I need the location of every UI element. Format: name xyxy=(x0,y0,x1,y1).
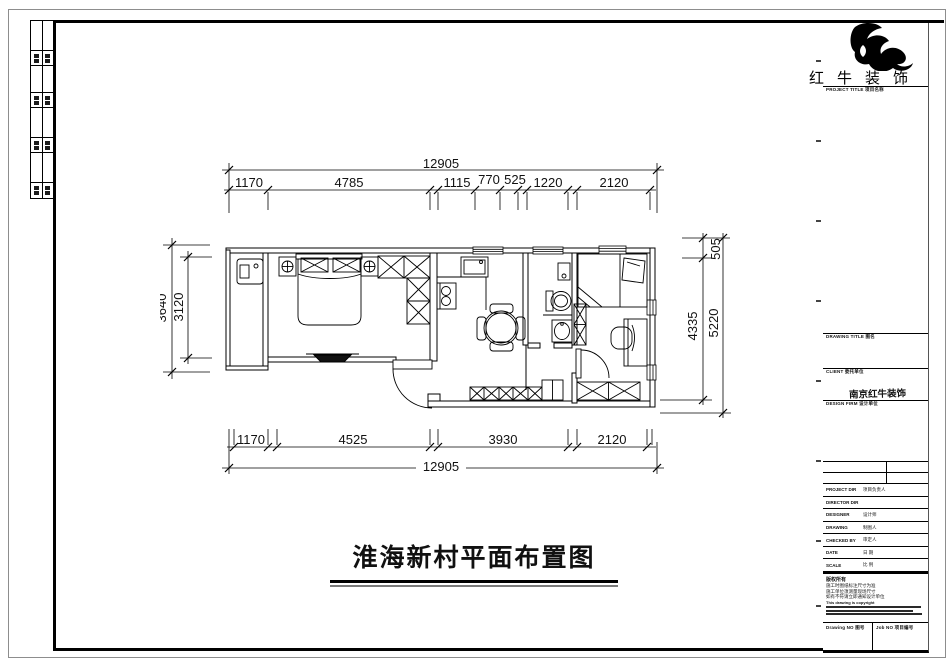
fold-tick xyxy=(816,460,821,462)
signoff-cell-marks xyxy=(43,183,54,198)
staff-row: DIRECTOR DIR xyxy=(823,496,928,509)
walls xyxy=(226,248,655,407)
svg-text:3640: 3640 xyxy=(160,294,169,323)
desk xyxy=(624,319,647,366)
client-value: 南京红牛装饰 xyxy=(849,385,906,400)
desk-chair xyxy=(611,325,635,351)
entry-cabinet xyxy=(542,380,563,400)
svg-text:1170: 1170 xyxy=(235,175,263,190)
signoff-cell-marks xyxy=(31,51,42,66)
notes-title: 版权所有 xyxy=(826,576,925,583)
signoff-cell-marks xyxy=(43,93,54,108)
dim-bottom-total: 12905 xyxy=(423,459,459,474)
fold-tick xyxy=(816,605,821,607)
dining-table xyxy=(477,304,525,351)
stove xyxy=(437,283,456,309)
svg-text:2120: 2120 xyxy=(600,175,629,190)
bedroom-door xyxy=(393,360,432,408)
drawing-sheet: 红牛装饰 PROJECT TITLE 项目名称 DRAWING TITLE 图名… xyxy=(0,0,949,668)
svg-text:1170: 1170 xyxy=(237,432,265,447)
signoff-column xyxy=(31,21,42,198)
dimension-labels: 12905 1170 4785 1115 770 525 1220 2120 1… xyxy=(160,156,723,474)
svg-text:1115: 1115 xyxy=(444,175,471,190)
drawing-title-label: DRAWING TITLE 图名 xyxy=(826,334,875,340)
svg-text:4335: 4335 xyxy=(685,312,700,341)
staff-table: PROJECT DIR 项目负责人 DIRECTOR DIR DESIGNER … xyxy=(823,483,928,571)
fold-tick xyxy=(816,380,821,382)
bedroom2-window xyxy=(599,246,626,254)
job-no-cell: Job NO 项目编号 xyxy=(873,623,928,651)
revision-row xyxy=(823,472,928,483)
toilet xyxy=(546,291,571,311)
plan-title: 淮海新村平面布置图 xyxy=(330,538,618,574)
drawing-no-cell: Drawing NO 图号 xyxy=(823,623,873,651)
signoff-strip xyxy=(30,20,54,199)
fold-tick xyxy=(816,300,821,302)
staff-row: SCALE 比 例 xyxy=(823,558,928,571)
double-bed xyxy=(296,254,362,325)
svg-text:5220: 5220 xyxy=(706,309,721,338)
dimension-lines xyxy=(163,163,731,474)
bull-logo xyxy=(833,21,923,71)
svg-text:3120: 3120 xyxy=(171,293,186,322)
signoff-cell-marks xyxy=(31,93,42,108)
wardrobe xyxy=(378,256,430,324)
svg-text:770: 770 xyxy=(478,172,500,187)
chair xyxy=(477,317,486,340)
shoe-cabinet xyxy=(470,387,542,400)
signoff-column xyxy=(42,21,54,198)
client-label: CLIENT 委托单位 xyxy=(826,369,864,375)
project-title-label: PROJECT TITLE 项目名称 xyxy=(826,87,884,93)
chair xyxy=(490,304,513,313)
fold-tick xyxy=(816,540,821,542)
notes-block: 版权所有 施工时图纸标注尺寸为准 施工单位须测量现场尺寸 如有不符请立即通知设计… xyxy=(823,574,928,622)
staff-row: DATE 日 期 xyxy=(823,546,928,559)
illegible-note-line xyxy=(826,606,921,608)
staff-row: PROJECT DIR 项目负责人 xyxy=(823,483,928,496)
kitchen-sink xyxy=(461,257,488,277)
fold-tick xyxy=(816,220,821,222)
svg-text:4785: 4785 xyxy=(335,175,364,190)
bathroom-window xyxy=(533,247,563,254)
fold-tick xyxy=(816,60,821,62)
title-block: 红牛装饰 PROJECT TITLE 项目名称 DRAWING TITLE 图名… xyxy=(823,23,929,653)
water-heater xyxy=(558,263,570,280)
title-underline xyxy=(330,580,618,583)
staff-row: CHECKED BY 审定人 xyxy=(823,533,928,546)
nightstand xyxy=(361,257,378,276)
svg-text:525: 525 xyxy=(504,172,526,187)
nightstand xyxy=(279,257,296,276)
plan-title-block: 淮海新村平面布置图 xyxy=(330,538,618,587)
svg-text:2120: 2120 xyxy=(598,432,627,447)
illegible-note-line xyxy=(826,610,913,612)
dim-top-total: 12905 xyxy=(423,156,459,171)
svg-text:505: 505 xyxy=(708,238,723,260)
svg-text:1220: 1220 xyxy=(534,175,563,190)
wardrobe-2 xyxy=(577,382,640,400)
washing-machine xyxy=(237,259,263,284)
illegible-note-line xyxy=(826,613,922,615)
side-window xyxy=(647,300,656,315)
pillow xyxy=(622,258,645,283)
brand-name: 红牛装饰 xyxy=(809,67,942,88)
kitchen-window xyxy=(473,247,503,254)
floor-plan: 12905 1170 4785 1115 770 525 1220 2120 1… xyxy=(160,140,760,485)
signoff-cell-marks xyxy=(31,183,42,198)
signoff-cell-marks xyxy=(31,138,42,153)
svg-text:3930: 3930 xyxy=(489,432,518,447)
svg-text:4525: 4525 xyxy=(339,432,368,447)
title-underline-shadow xyxy=(330,585,618,587)
side-window xyxy=(647,365,656,380)
signoff-cell-marks xyxy=(43,138,54,153)
signoff-cell-marks xyxy=(43,51,54,66)
revision-row xyxy=(823,461,928,472)
design-firm-label: DESIGN FIRM 设计单位 xyxy=(826,401,878,407)
staff-row: DESIGNER 设计师 xyxy=(823,508,928,521)
single-bed xyxy=(578,254,647,307)
fold-tick xyxy=(816,140,821,142)
wash-basin xyxy=(552,320,572,342)
bedroom2-door xyxy=(576,349,609,378)
staff-row: DRAWING 制图人 xyxy=(823,521,928,534)
